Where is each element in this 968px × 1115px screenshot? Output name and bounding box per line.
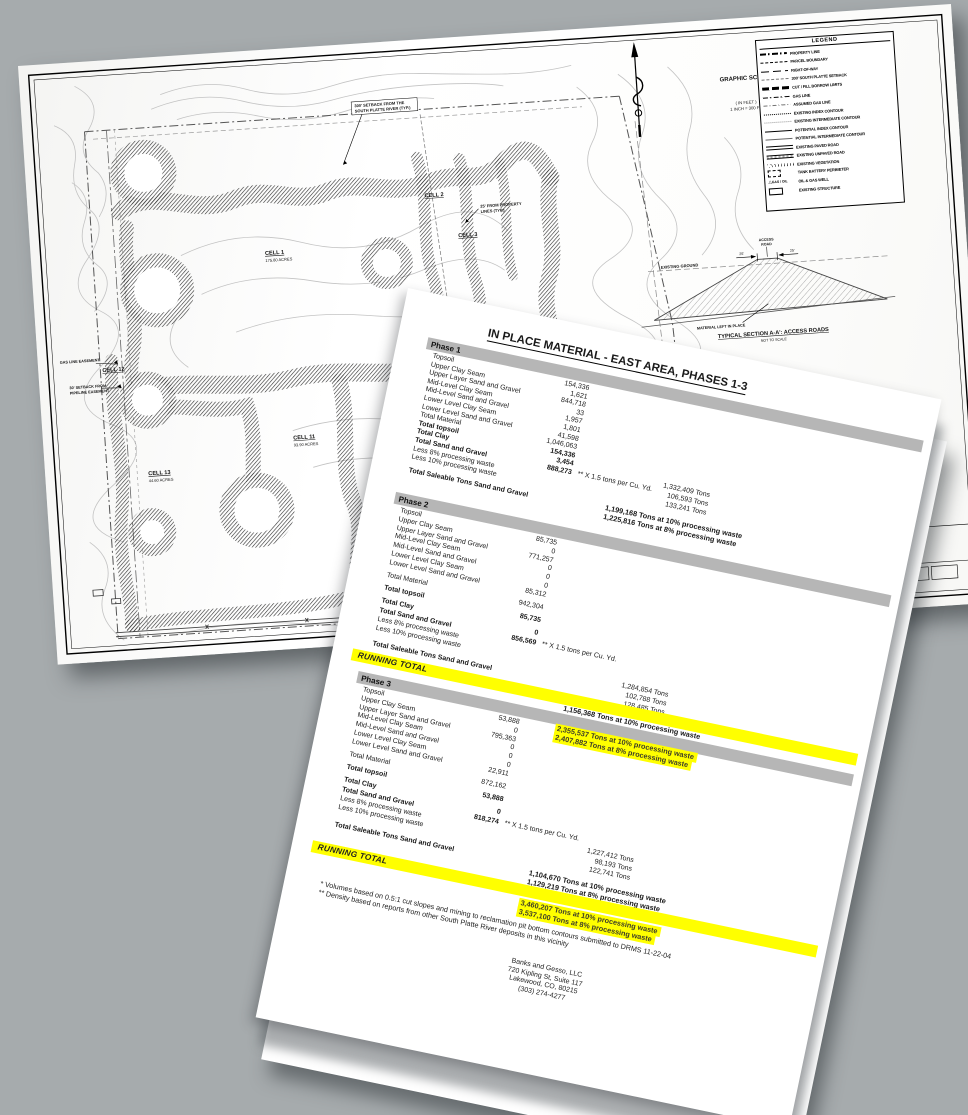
cell-acres-label: 175.80 ACRES [265,256,293,263]
legend-sample-line [768,170,781,178]
legend-sample-line [767,163,794,168]
legend-sample-dash [760,60,787,66]
legend-sample-veg [767,162,794,168]
cell-acres-label: 44.60 ACRES [149,477,174,484]
legend-sample-bold-dash [762,85,789,91]
well-pad [125,258,189,322]
legend-sample-dotted [764,111,791,117]
gas-easement-label: GAS LINE EASEMENT [60,358,101,365]
legend-sample-line [764,121,791,124]
cell-name-label: CELL 3 [458,232,478,239]
well-sample-label: GAS / OIL [772,180,788,185]
cell-name-label: CELL 2 [424,192,444,199]
typical-section: EXISTING GROUND 25' 25' ACCESS ROAD MATE… [636,230,897,351]
legend-sample-longdash [761,68,788,74]
legend-item-label: EXISTING STRUCTURE [799,184,841,192]
pipeline-note-line2: PIPELINE EASEMENT [70,389,110,396]
legend-sample-rect-dash [768,171,795,177]
legend-sample-well: △GAS / OIL [768,179,795,185]
scene: CELL 1175.80 ACRESCELL 2CELL 3CELL 1193.… [0,0,968,1115]
north-arrow-icon [630,42,646,137]
material-left-label: MATERIAL LEFT IN PLACE [697,323,746,330]
legend-sample-line [766,138,793,141]
running-total-label: RUNNING TOTAL [317,842,388,865]
legend-sample-dashdot-thin [763,102,790,108]
well-pad [133,513,171,551]
legend-sample-line [763,95,790,98]
legend-sample-line [764,112,791,115]
legend-sample-dashdot-heavy [760,51,787,57]
well-pad [124,377,171,424]
section-dim-left: 25' [739,252,744,256]
legend-sample-line [763,104,790,107]
legend-sample-solid-thin [765,137,792,143]
legend-rows: PROPERTY LINEPARCEL BOUNDARYRIGHT-OF-WAY… [760,42,900,196]
graphic-scale-ratio: 1 INCH = 300 FT. [730,105,763,112]
legend-sample-dash-thin [761,77,788,83]
well-pad [366,242,409,285]
legend-sample-line [769,187,783,195]
legend-sample-dotted-thin [764,120,791,126]
legend-sample-rect [769,188,796,194]
legend-sample-line [767,153,794,159]
cell-acres-label: 93.90 ACRES [294,441,319,448]
legend-sample-solid [765,128,792,134]
river-setback-note: 300' SETBACK FROM THE SOUTH PLATTE RIVER… [339,98,421,165]
legend-item-label: GAS LINE [793,92,811,98]
legend: LEGEND PROPERTY LINEPARCEL BOUNDARYRIGHT… [755,31,905,212]
legend-sample-line [762,86,789,90]
well-pad [116,145,171,200]
legend-item-label: PROPERTY LINE [790,49,820,56]
section-dim-right: 25' [790,248,795,252]
existing-ground-label: EXISTING GROUND [661,262,699,269]
legend-item-label: RIGHT-OF-WAY [791,66,818,73]
cell-name-label: CELL 12 [102,367,125,374]
legend-sample-road [767,154,794,160]
legend-sample-line [765,130,792,133]
legend-sample-line [760,52,787,56]
legend-sample-line [762,78,789,81]
legend-item-label: OIL & GAS WELL [798,176,829,183]
legend-sample-double [766,145,793,151]
legend-sample-line [760,61,787,64]
legend-sample-dashdot [763,94,790,100]
legend-sample-line [766,145,793,151]
access-road-label-2: ROAD [761,242,772,247]
section-subtitle: NOT TO SCALE [761,337,788,343]
well-pad [225,478,289,542]
legend-sample-line [761,70,788,73]
